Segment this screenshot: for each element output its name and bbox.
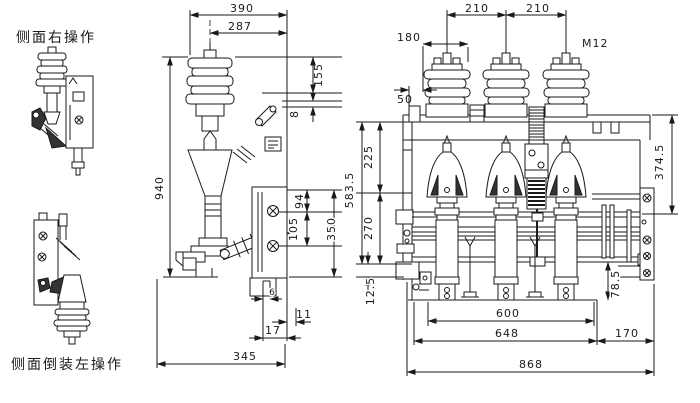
switchgear-outline-drawing: 侧面右操作 侧面倒装左操作 [0,0,700,403]
caption-side-inverted-left-operation: 侧面倒装左操作 [11,357,123,373]
dim-m12-label: M12 [582,37,609,50]
dim-50-label: 50 [397,93,413,106]
dim-180-label: 180 [397,31,421,44]
dim-940-label: 940 [153,176,166,200]
dim-105-label: 105 [287,217,300,241]
dim-6-label: 6 [269,288,275,298]
dim-648-label: 648 [495,327,519,340]
dim-8-label: 8 [288,110,301,118]
interrupter-cylinder-1 [435,208,459,300]
dim-210-right-label: 210 [526,2,550,15]
dim-270-label: 270 [362,216,375,240]
caption-side-right-operation: 侧面右操作 [16,30,96,46]
dim-17-label: 17 [265,324,281,337]
dim-170-label: 170 [615,327,639,340]
dim-350-label: 350 [325,217,338,241]
dim-374-5-label: 374.5 [653,144,666,181]
dim-583-5-label: 583.5 [343,172,356,209]
dim-225-label: 225 [362,145,375,169]
dim-155-label: 155 [312,63,325,87]
dim-390-label: 390 [230,2,254,15]
interrupter-cylinder-2 [494,208,518,300]
dim-868-label: 868 [519,358,543,371]
side-view-nameplate [265,137,281,151]
dim-345-label: 345 [233,350,257,363]
pole-link-block [470,105,484,122]
dim-287-label: 287 [228,20,252,33]
dim-210-left-label: 210 [465,2,489,15]
technical-drawing-sheet: 侧面右操作 侧面倒装左操作 [0,0,700,403]
interrupter-cylinder-3 [554,208,578,300]
dim-78-5-label: 78.5 [609,270,622,299]
dim-11-label: 11 [296,308,312,321]
dim-94-label: 94 [293,193,306,209]
dim-12-5-label: 12.5 [364,277,377,306]
dim-600-label: 600 [496,307,520,320]
